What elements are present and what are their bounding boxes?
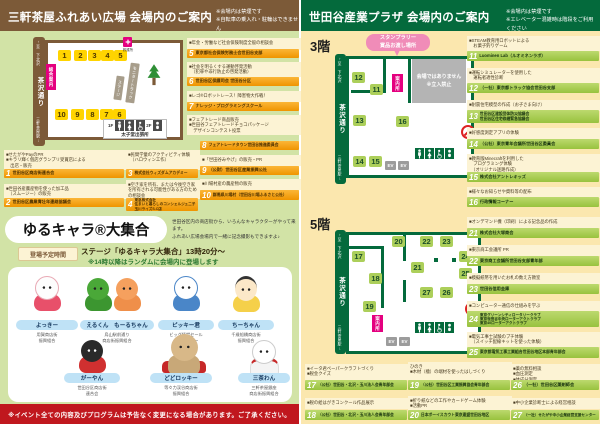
booth-27-desc: ■中小企業診断士による経営相談	[511, 398, 600, 409]
info-desk-f3: 案内所	[392, 74, 403, 92]
road-to-bottom: 三軒茶屋駅↓	[37, 117, 42, 143]
booth-9-desc: ■「世田谷みやげ」の販売・PR	[200, 155, 301, 166]
mascot-figure-chii-chan	[231, 276, 261, 312]
baby-icon	[445, 322, 454, 333]
booth-number: 16	[468, 198, 480, 207]
booth-21-desc: ■オンデマンド機（印刷）による記念品の作成	[467, 217, 600, 228]
female-icon	[425, 148, 434, 159]
booth-number: 8	[201, 141, 208, 150]
booth-number: 13	[468, 112, 480, 121]
booth-org: （公社）世田谷区工業振興協会青年部会	[421, 383, 489, 387]
map-booth-3: 3	[88, 50, 101, 61]
booth-4-desc: ■空き家を所有、または今後空き家を所有される可能性がある方のための相談会	[126, 180, 200, 199]
chazawa-street-f3: ↑至 下北沢 茶沢通り 三軒茶屋駅↓	[335, 54, 346, 184]
booth-org: 世田谷区農業青壮年連絡協議会	[12, 200, 71, 205]
map-booth-20: 20	[392, 236, 405, 247]
general-info-booth: 総合案内	[46, 64, 56, 90]
booth-14-desc: ■好感度測定アプリの体験	[467, 128, 600, 139]
booth-23-desc: ■模擬紙幣を用いたお札の数え方教室	[467, 273, 600, 284]
booth-number: 7	[188, 102, 195, 111]
booth-27-bar: 27 （一社）せたがや中小企業経営支援センター	[511, 410, 599, 420]
booth-13-bar: 13 世田谷区建設団体防災協議会 世田谷区住宅修繕緊急協議会	[467, 110, 599, 123]
booth-6-bar: 6 世田谷区保護司会 世田谷分区	[187, 77, 299, 86]
booth-23-bar: 23 世田谷信用金庫	[467, 284, 599, 294]
booth-15-desc: ■教育版Minecraftを利用した プログラミング体験 （オリジナル迷路作成）	[467, 154, 600, 173]
booth-org: （公財）世田谷区産業振興公社	[208, 168, 267, 173]
booth-org: （一社）世田谷区薬剤師会	[524, 383, 574, 388]
booth-number: 6	[188, 77, 195, 86]
booth-number: 2	[5, 198, 12, 207]
booth-2-desc: ■世田谷産農産物を使った加工品 （スムージー）の販売	[4, 184, 126, 199]
booth-number: 18	[306, 411, 318, 420]
booth-org: 行政情報コーナー	[480, 200, 514, 205]
map-booth-21: 21	[411, 262, 424, 273]
booth-org: 株式会社ウィズダムアカデミー	[134, 171, 187, 175]
bubble-tail	[394, 50, 400, 56]
booth-22-bar: 22 東京商工会議所世田谷支部青年部	[467, 256, 599, 266]
map-booth-10: 10	[55, 109, 68, 120]
booth-8-desc: ■フェアトレード商品販売 ■世田谷フェアトレードチョコパッケージ デザインコンテ…	[187, 115, 301, 135]
booth-10-bar: 10 群馬県川場村（世田谷川場ふるさと公社）	[200, 190, 299, 200]
map-booth-17: 17	[352, 251, 365, 262]
mascot-org: 世田谷区商店街 連合会	[64, 385, 120, 396]
booth-org: フェアトレードタウン世田谷推進委員会	[208, 143, 278, 147]
booth-12-bar: 12 （一社）東京都トラック協会世田谷支部	[467, 83, 599, 93]
right-header: 世田谷産業プラザ 会場内のご案内 ※会場内は禁煙です ※エレベーター混雑時は階段…	[301, 0, 600, 31]
booth-number: 12	[468, 84, 480, 93]
floor-5-label: 5階	[310, 214, 330, 233]
map-booth-4: 4	[101, 50, 114, 61]
pillar	[434, 258, 438, 262]
map-booth-14: 14	[353, 156, 366, 167]
booth-7-desc: ■レゴ®ロボットレース！障害物大作戦！	[187, 91, 301, 102]
left-footer-disclaimer: ※イベント全ての内容及びプログラムは予告なく変更になる場合があります。ご了承くだ…	[0, 404, 299, 424]
booth-6-desc: ■社会を明るくする運動啓発活動 （犯罪や非行防止の啓発活動）	[187, 62, 301, 77]
booth-org: 東京都電気工事工業組合世田谷地区本部青年部会	[480, 350, 566, 354]
map-booth-2: 2	[74, 50, 87, 61]
mascot-figure-gaayan	[77, 340, 107, 373]
booth-number: 17	[306, 381, 318, 390]
road-to-bottom: 三軒茶屋駅↓	[338, 325, 343, 351]
map-booth-19: 19	[363, 301, 376, 312]
mascot-figure-yokkii	[32, 276, 62, 311]
map-booth-12: 12	[352, 72, 365, 83]
booth-26-bar: 26 （一社）世田谷区薬剤師会	[511, 380, 599, 390]
elevator: EV	[386, 337, 397, 346]
booth-1-bar: 1 世田谷区商店街連合会	[4, 169, 124, 178]
road-to-top: ↑至 下北沢	[338, 57, 343, 83]
map-booth-16: 16	[396, 116, 409, 127]
booth-number: 15	[468, 173, 480, 182]
booth-1-desc: ■せたがやPayのPR ■キラリ輝く個店グランプリ受賞店による 出店・販売	[4, 150, 126, 170]
facility-label: 太子堂出張所	[121, 132, 149, 138]
mascot-figure-moru-chan	[112, 278, 142, 311]
booth-org: 世田谷区商店街連合会	[12, 171, 54, 176]
elevator: EV	[385, 161, 396, 170]
booth-26-desc: ■薬の無料相談 ■血圧測定 ■体成分測定	[511, 364, 600, 380]
booth-19-desc: ひのき ■木材（檜）の端材を使ったはしづくり	[408, 362, 512, 380]
pillar	[452, 258, 456, 262]
booth-org: （一社）せたがや中小企業経営支援センター	[524, 413, 596, 417]
chazawa-street-f5: ↑至 下北沢 茶沢通り 三軒茶屋駅↓	[335, 230, 346, 354]
wheelchair-icon	[136, 120, 145, 131]
mascot-figure-eru-kun	[83, 278, 113, 311]
wall	[403, 280, 406, 302]
booth-number: 11	[468, 52, 479, 61]
map-booth-8: 8	[86, 109, 99, 120]
booth-18-desc: ■税の絵はがきコンクール作品展示	[305, 398, 409, 409]
booth-22-desc: ■東京商工会議所 PR	[467, 245, 600, 256]
tashido-branch-office: 1F 2F 太子堂出張所	[103, 119, 167, 139]
booth-org: （公社）世田谷・北沢・玉川法人会青年部会	[318, 413, 394, 417]
restrooms-f3	[415, 148, 454, 159]
booth-number: 25	[468, 348, 480, 357]
male-icon	[115, 120, 124, 131]
booth-18-bar: 18 （公社）世田谷・北沢・玉川法人会青年部会	[305, 410, 407, 420]
booth-number: 10	[201, 191, 213, 200]
booth-org: （一社）東京都トラック協会世田谷支部	[480, 86, 555, 91]
booth-org: 東急株式会社 住まいと暮らしのコンシェルジュ二子玉川ライズS.C店	[134, 198, 197, 210]
booth-number: 27	[512, 411, 524, 420]
booth-number: 4	[127, 200, 134, 209]
booth-3-bar: 3 株式会社ウィズダムアカデミー	[126, 169, 198, 178]
map-booth-26: 26	[440, 287, 453, 298]
floor-2f-label: 2F	[146, 123, 151, 128]
road-to-top: ↑至 下北沢	[338, 233, 343, 259]
booth-9-bar: 9 （公財）世田谷区産業振興公社	[200, 166, 299, 175]
mascot-name-tag: よっきー	[16, 320, 78, 330]
mascot-name-tag: どどロッキー	[150, 373, 212, 383]
booth-org: 世田谷信用金庫	[480, 287, 509, 292]
stamp-rally-bubble: スタンプラリー 賞品お渡し場所	[366, 34, 430, 51]
mascot-name-tag: がーやん	[64, 373, 120, 383]
booth-org: 株式会社大塚商会	[480, 231, 514, 236]
mascot-name-tag: ちーちゃん	[218, 320, 274, 330]
road-name: 茶沢通り	[336, 104, 346, 134]
booth-number: 14	[468, 140, 480, 149]
first-aid-icon	[123, 37, 132, 47]
booth-org: 東京都社会保険労務士会世田谷支部	[195, 51, 262, 56]
mascot-name-tag: ピッキー君	[158, 320, 214, 330]
map-booth-11: 11	[370, 84, 383, 95]
booth-25-desc: ■電気工事士試験のプチ体験 （スイッチ配線キットを使った体験）	[467, 332, 600, 347]
map-booth-1: 1	[58, 50, 71, 61]
booth-org: Luominen Lab（ルオミネンラボ）	[479, 54, 545, 59]
booth-org: （公社）東京青年会議所世田谷区委員会	[480, 142, 555, 147]
mascot-figure-pikky-kun	[171, 276, 201, 311]
booth-number: 19	[409, 381, 421, 390]
baby-icon	[445, 148, 454, 159]
booth-25-bar: 25 東京都電気工事工業組合世田谷地区本部青年部会	[467, 347, 599, 358]
left-page-title: 三軒茶屋ふれあい広場 会場内のご案内	[8, 9, 212, 25]
floor-1f-label: 1F	[108, 123, 113, 128]
closed-area-notice: 会場ではありません ※立入禁止	[412, 59, 466, 103]
booth-20-bar: 20 日本ボーイスカウト東京連盟世田谷地区	[408, 410, 510, 420]
booth-14-bar: 14 （公社）東京青年会議所世田谷区委員会	[467, 139, 599, 149]
booth-number: 26	[512, 381, 524, 390]
road-name: 茶沢通り	[34, 77, 44, 107]
mascot-name-tag: えるくん もーるちゃん	[80, 320, 154, 330]
booth-number: 23	[468, 285, 480, 294]
map-booth-13: 13	[353, 115, 366, 126]
restrooms-f5	[415, 322, 454, 333]
mascot-lead-text: 世田谷区内の商店街から、いろんなキャラクターがやって来ます。 ふれあい広場会場内…	[172, 218, 298, 240]
road-name: 茶沢通り	[336, 277, 346, 307]
female-icon	[425, 322, 434, 333]
appearance-time-badge: 登場予定時間	[18, 247, 78, 261]
mascot-org: 三軒茶屋銀座 商店街振興組合	[238, 385, 290, 396]
booth-4-bar: 4 東急株式会社 住まいと暮らしのコンシェルジュ二子玉川ライズS.C店	[126, 198, 198, 211]
booth-3-desc: ■民間学童のアクティビティ体験 （ハロウィン工作）	[126, 150, 200, 170]
booth-org: 東京グリーンシティロータリークラブ 東京世田谷中央ローターアクトクラブ 東京40…	[480, 313, 541, 325]
map-booth-15: 15	[369, 156, 382, 167]
booth-org: ナレッジ・プログラミングスクール	[195, 104, 262, 109]
booth-org: 群馬県川場村（世田谷川場ふるさと公社）	[213, 193, 287, 197]
floor-3-label: 3階	[310, 36, 330, 55]
booth-20-desc: ■折り紙などの工作やカードゲーム体験 ■活動PR	[408, 396, 512, 411]
map-booth-22: 22	[420, 236, 433, 247]
map-booth-18: 18	[369, 273, 382, 284]
wheelchair-icon	[435, 322, 444, 333]
booth-17-bar: 17 （公社）世田谷・北沢・玉川法人会青年部会	[305, 380, 407, 390]
booth-21-bar: 21 株式会社大塚商会	[467, 228, 599, 238]
mascot-org: 等々力渓谷商店街 振興組合	[150, 385, 212, 396]
booth-17-desc: ■イータ君ペーパークラフトづくり ■税金クイズ	[305, 364, 409, 380]
tree-icon	[146, 64, 162, 87]
male-icon	[415, 322, 424, 333]
road-to-top: ↑至 下北沢	[37, 40, 42, 66]
left-header-notes: ※会場内は禁煙です ※自転車の乗入れ・駐輪はできません	[216, 8, 298, 33]
booth-5-bar: 5 東京都社会保険労務士会世田谷支部	[187, 49, 299, 58]
first-aid-label: 救護所	[116, 48, 140, 53]
chazawa-street-left-map: ↑至 下北沢 茶沢通り 三軒茶屋駅↓	[33, 37, 45, 146]
road-to-bottom: 三軒茶屋駅↓	[338, 155, 343, 181]
map-booth-9: 9	[71, 109, 84, 120]
booth-11-desc: ■STEAM教育用ロボットによる お菓子釣りゲーム	[467, 36, 600, 51]
map-booth-23: 23	[440, 236, 453, 247]
mascot-org: 用賀商店街 振興組合	[16, 332, 78, 343]
baby-icon	[153, 120, 162, 131]
booth-number: 1	[5, 169, 12, 178]
booth-19-bar: 19 （公社）世田谷区工業振興協会青年部会	[408, 380, 510, 390]
wall	[349, 246, 383, 249]
elevator: EV	[398, 161, 409, 170]
booth-2-bar: 2 世田谷区農業青壮年連絡協議会	[4, 198, 124, 207]
booth-org: 株式会社アントレキッズ	[480, 175, 526, 180]
booth-number: 5	[188, 49, 195, 58]
booth-number: 9	[201, 166, 208, 175]
booth-org: （公社）世田谷・北沢・玉川法人会青年部会	[318, 383, 394, 387]
booth-11-bar: 11 Luominen Lab（ルオミネンラボ）	[467, 51, 599, 61]
booth-number: 22	[468, 257, 480, 266]
booth-number: 20	[409, 411, 421, 420]
booth-12-desc: ■運転シミュレーターを使用した 運転者適性診断	[467, 68, 600, 83]
appearance-time-line2: ※14時以降はランダムに会場内に登場します	[88, 256, 219, 266]
elevator: EV	[399, 337, 410, 346]
booth-7-bar: 7 ナレッジ・プログラミングスクール	[187, 102, 299, 111]
booth-8-bar: 8 フェアトレードタウン世田谷推進委員会	[200, 141, 299, 150]
booth-org: 世田谷区建設団体防災協議会 世田谷区住宅修繕緊急協議会	[480, 112, 529, 121]
info-desk-f5: 案内所	[372, 315, 383, 332]
booth-org: 世田谷区保護司会 世田谷分区	[195, 79, 251, 84]
wall	[383, 59, 386, 90]
booth-15-bar: 15 株式会社アントレキッズ	[467, 172, 599, 182]
mascot-section-title: ゆるキャラ®大集合	[5, 216, 167, 243]
right-header-notes: ※会場内は禁煙です ※エレベーター混雑時は階段をご利用ください	[506, 8, 598, 33]
mascot-name-tag: 三茶わん	[238, 373, 290, 383]
facility-icons: 1F 2F	[108, 120, 162, 131]
booth-24-bar: 24 東京グリーンシティロータリークラブ 東京世田谷中央ローターアクトクラブ 東…	[467, 311, 599, 327]
booth-number: 24	[468, 315, 480, 324]
wall	[408, 59, 411, 103]
booth-16-bar: 16 行政情報コーナー	[467, 197, 599, 207]
booth-10-desc: ■川場村産の農産物の販売	[200, 179, 301, 190]
male-icon	[415, 148, 424, 159]
right-page-title: 世田谷産業プラザ 会場内のご案内	[309, 9, 490, 25]
booth-org: 東京商工会議所世田谷支部青年部	[480, 259, 543, 264]
event-guide-leaflet: 三軒茶屋ふれあい広場 会場内のご案内 ※会場内は禁煙です ※自転車の乗入れ・駐輪…	[0, 0, 600, 424]
female-icon	[125, 120, 134, 131]
booth-number: 21	[468, 229, 480, 238]
wheelchair-icon	[435, 148, 444, 159]
map-booth-27: 27	[420, 287, 433, 298]
left-header: 三軒茶屋ふれあい広場 会場内のご案内 ※会場内は禁煙です ※自転車の乗入れ・駐輪…	[0, 0, 299, 31]
booth-org: 日本ボーイスカウト東京連盟世田谷地区	[421, 413, 489, 417]
